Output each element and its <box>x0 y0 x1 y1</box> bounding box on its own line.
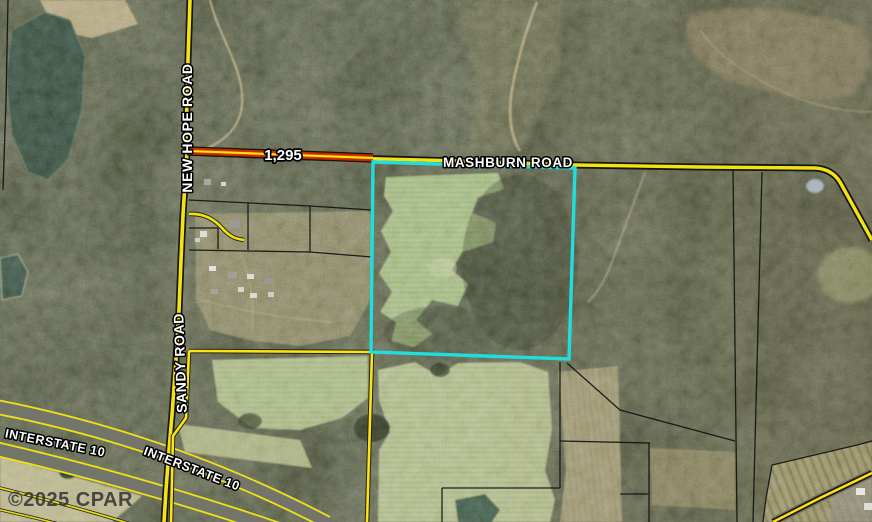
distance-measurement-label: 1,295 <box>264 147 302 164</box>
mashburn-road-label: MASHBURN ROAD <box>443 155 573 170</box>
aerial-map-svg: NEW HOPE ROAD SANDY ROAD MASHBURN ROAD I… <box>0 0 872 522</box>
copyright-watermark: ©2025 CPAR <box>8 489 133 511</box>
new-hope-road-label: NEW HOPE ROAD <box>179 63 195 192</box>
aerial-map-canvas[interactable]: NEW HOPE ROAD SANDY ROAD MASHBURN ROAD I… <box>0 0 872 522</box>
